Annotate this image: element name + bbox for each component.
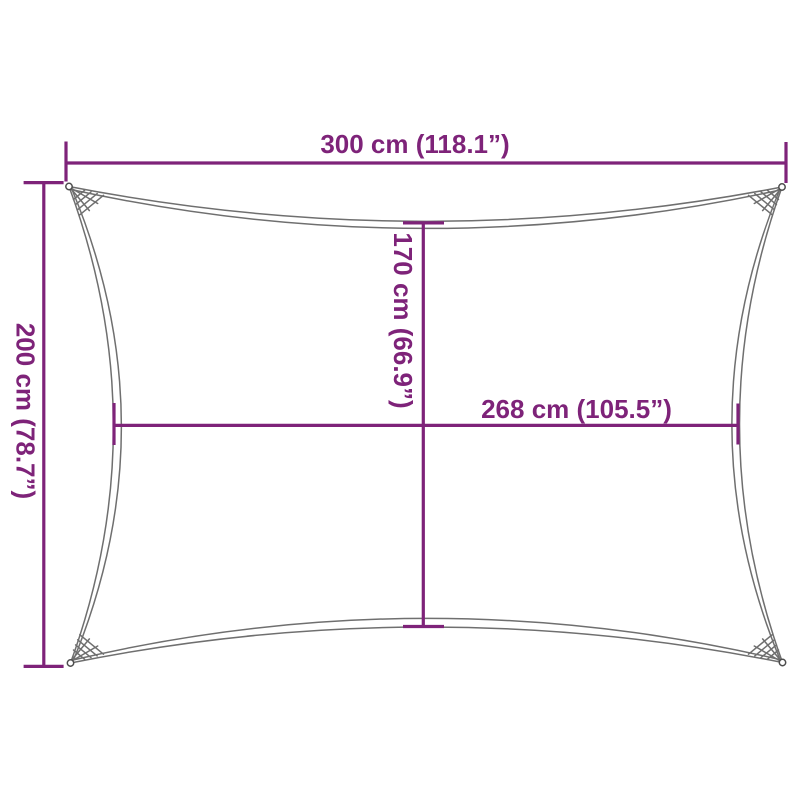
svg-text:300 cm (118.1”): 300 cm (118.1”) — [320, 129, 509, 159]
svg-text:170 cm (66.9”): 170 cm (66.9”) — [388, 232, 418, 408]
svg-text:268 cm (105.5”): 268 cm (105.5”) — [481, 394, 672, 424]
svg-text:200 cm (78.7”): 200 cm (78.7”) — [11, 323, 41, 499]
